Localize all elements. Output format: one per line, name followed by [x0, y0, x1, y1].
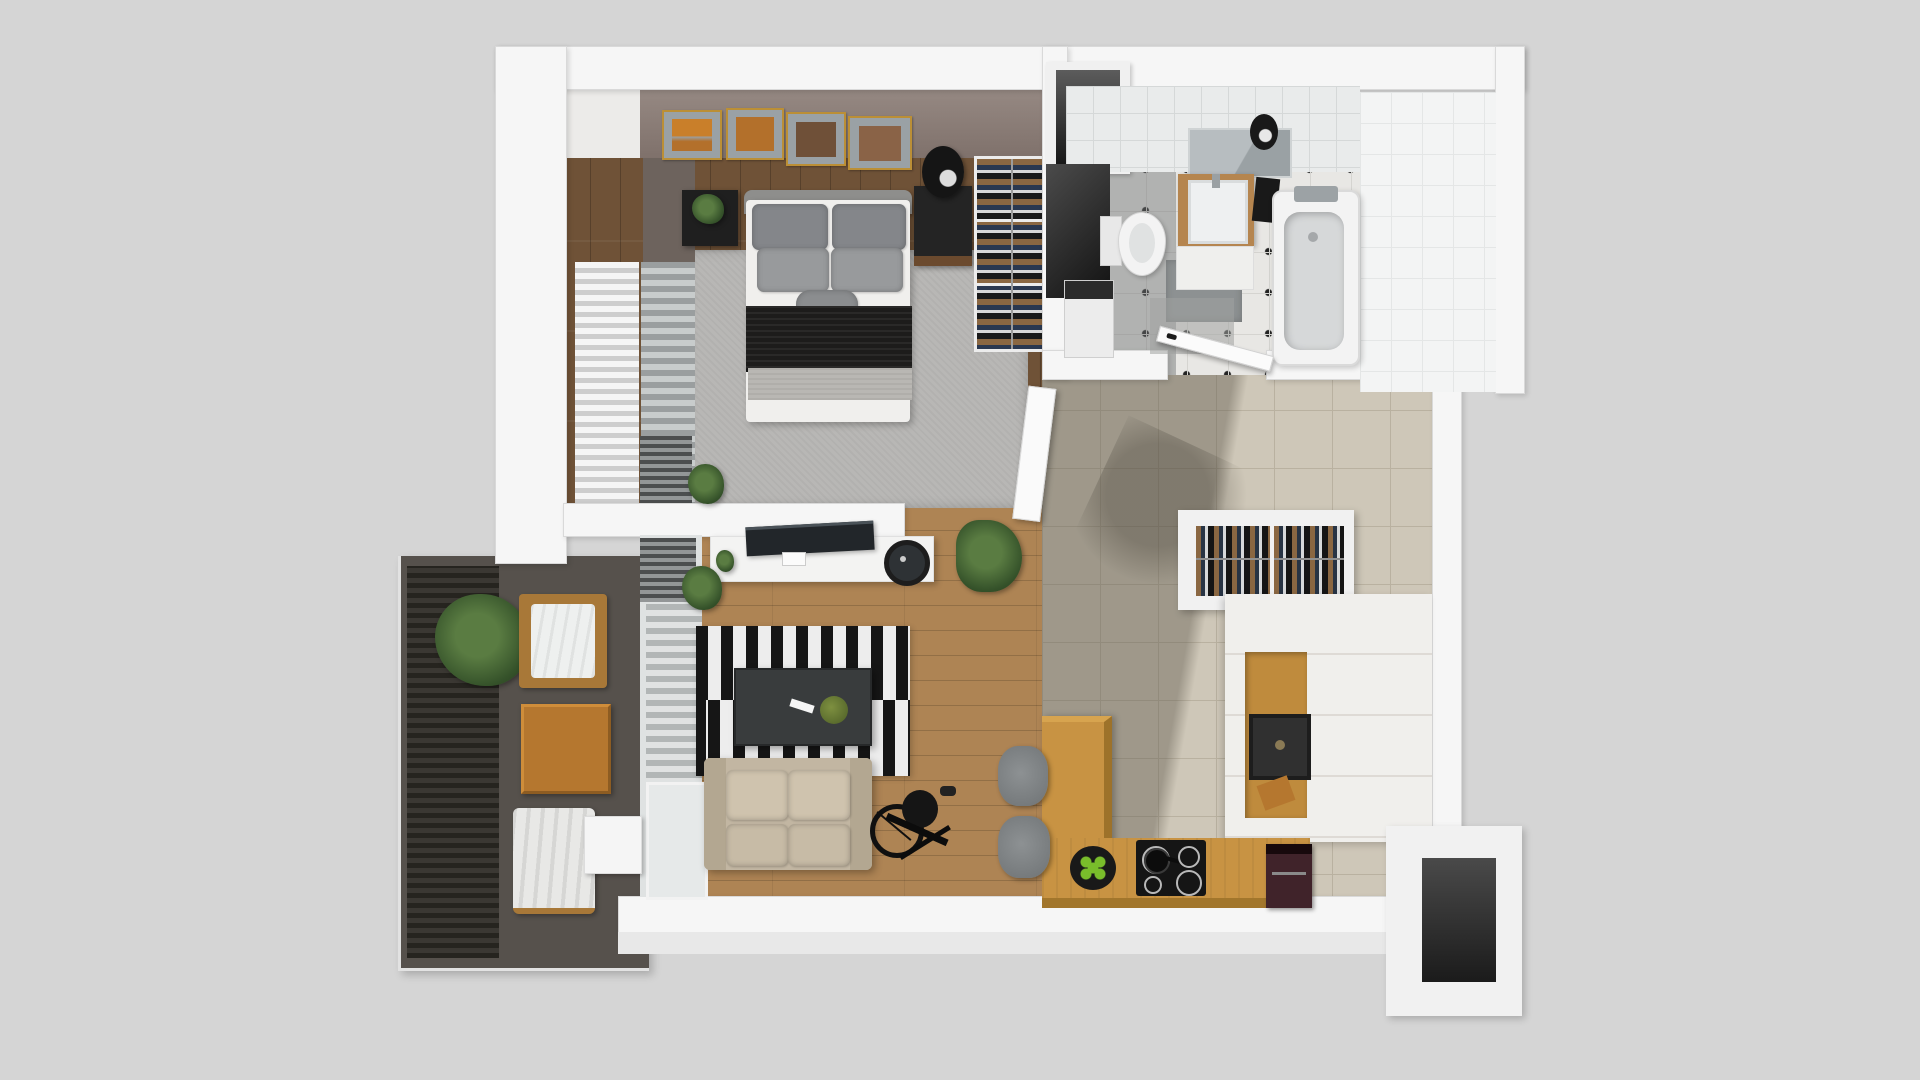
outer-wall-east — [1495, 46, 1525, 394]
mirror-sconce — [1250, 114, 1278, 150]
door-handle — [1166, 333, 1177, 340]
bed-gray-blanket — [748, 368, 912, 400]
entry-rack-clothes — [1196, 526, 1270, 596]
floorplan-render — [0, 0, 1920, 1080]
sink-faucet — [1212, 174, 1220, 188]
bar-stool — [998, 816, 1050, 878]
turntable — [884, 540, 930, 586]
sofa-armrest — [704, 758, 726, 870]
bar-stool — [998, 746, 1048, 806]
bedroom-radiator — [640, 436, 692, 506]
toilet-seat — [1129, 223, 1155, 263]
coffee-machine — [1266, 844, 1312, 908]
bed-pillow — [831, 248, 903, 292]
cutting-board — [1257, 775, 1296, 810]
wall-picture-2 — [726, 108, 784, 160]
bathtub-drain — [1308, 232, 1318, 242]
sofa-seat-cushion — [788, 824, 850, 866]
counter-peninsula — [1042, 716, 1112, 846]
burner — [1178, 846, 1200, 868]
bike-seat — [940, 786, 956, 796]
bottom-wall-shadow — [618, 932, 1462, 954]
balcony-armchair — [519, 594, 607, 688]
bedroom-west-wall-face — [565, 86, 640, 158]
sofa — [704, 758, 872, 870]
picture-print — [859, 126, 901, 161]
living-plant-small — [688, 464, 724, 504]
pan — [1144, 848, 1170, 874]
balcony-side-table — [521, 704, 611, 794]
sideboard-plant — [716, 550, 734, 572]
sofa-back-cushion — [788, 770, 850, 820]
remote — [789, 698, 814, 713]
bed-pillow — [752, 204, 828, 250]
washing-machine — [1064, 280, 1114, 358]
sink-basin — [1188, 180, 1248, 244]
table-lamp — [922, 146, 964, 198]
living-plant-small — [682, 566, 722, 610]
green-apples — [1078, 854, 1108, 882]
wall-picture-3 — [786, 112, 846, 166]
balcony-lounger — [513, 808, 595, 914]
bed-throw-blanket — [746, 306, 912, 372]
bedroom-window — [575, 262, 639, 508]
wardrobe-rail — [1011, 159, 1013, 349]
washer-top-panel — [1065, 281, 1113, 299]
balcony-cabinet — [584, 816, 642, 874]
armchair-cushion — [531, 604, 595, 678]
built-in-oven — [1249, 714, 1311, 780]
moss-ball — [820, 696, 848, 724]
utility-bumpout — [1386, 826, 1522, 1016]
balcony-glass-door — [646, 782, 708, 900]
balcony — [398, 556, 649, 971]
entry-rack-clothes — [1274, 526, 1344, 596]
wall-picture-1 — [662, 110, 722, 160]
coffee-machine-trim — [1272, 872, 1306, 875]
rack-rail — [1274, 558, 1344, 560]
outer-wall-bottom — [618, 896, 1464, 934]
turntable-center — [900, 556, 906, 562]
bedroom-wardrobe — [974, 156, 1048, 352]
sofa-seat-cushion — [726, 824, 788, 866]
living-palm-plant — [956, 520, 1022, 592]
apple-tray — [1070, 846, 1116, 890]
sink-vanity — [1178, 174, 1254, 246]
oven-knob — [1275, 740, 1285, 750]
cooktop — [1136, 840, 1206, 896]
wall-picture-4 — [848, 116, 912, 170]
bathtub — [1272, 190, 1360, 366]
rack-rail — [1196, 558, 1270, 560]
picture-print — [736, 117, 774, 151]
bed-pillow — [757, 248, 829, 292]
nightstand-right — [914, 186, 972, 266]
exercise-bike — [866, 782, 958, 874]
outer-wall-left — [495, 46, 567, 564]
burner — [1144, 876, 1162, 894]
oven-niche — [1245, 652, 1307, 818]
hall-east-wall — [1432, 376, 1462, 836]
bathtub-faucet — [1294, 186, 1338, 202]
nightstand-plant — [692, 194, 724, 224]
sideboard-device — [782, 552, 806, 566]
picture-print — [672, 119, 711, 151]
burner — [1176, 870, 1202, 896]
vanity-cabinet — [1176, 246, 1254, 290]
living-vertical-blinds — [646, 604, 702, 780]
bed-pillow — [832, 204, 906, 250]
utility-recess — [1422, 858, 1496, 982]
coffee-table — [734, 668, 872, 746]
bathroom-east-tile-wall — [1360, 92, 1496, 392]
picture-print — [796, 122, 835, 157]
sofa-back-cushion — [726, 770, 788, 820]
outer-wall-top — [495, 46, 1525, 90]
